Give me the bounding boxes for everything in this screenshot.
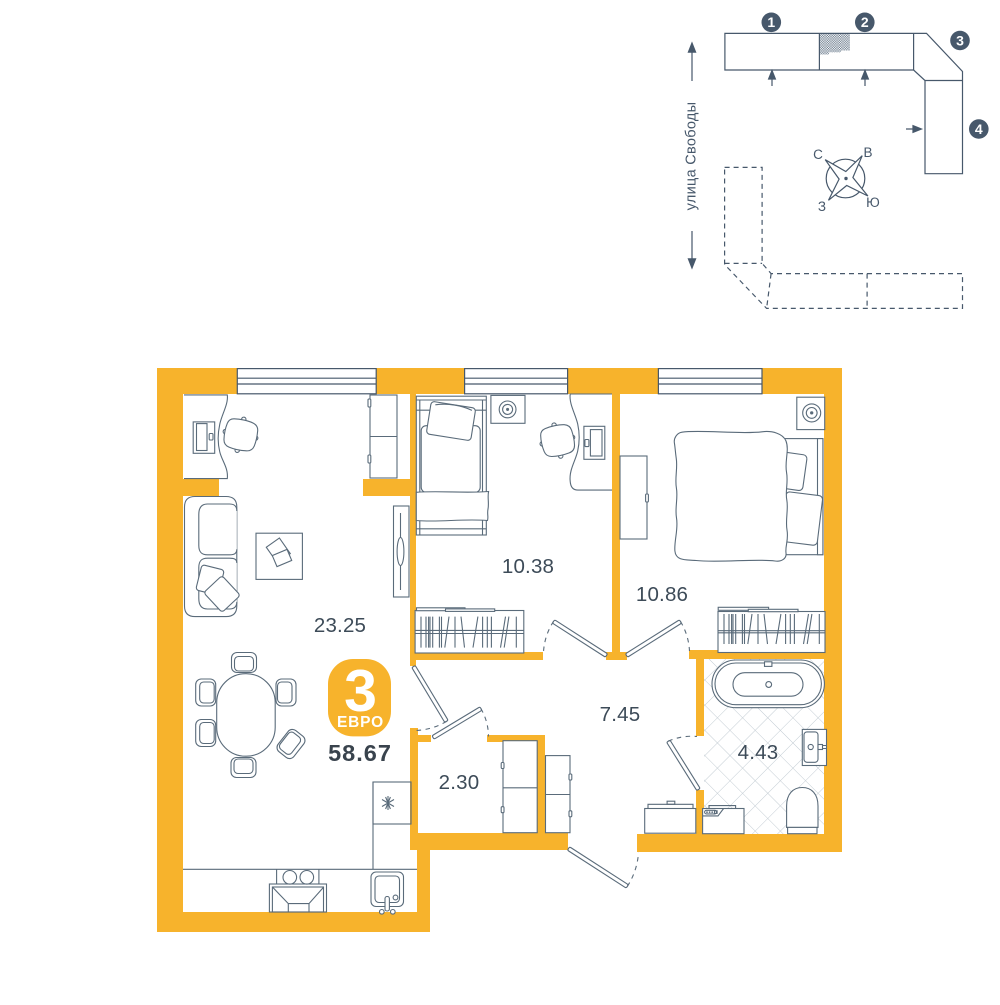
svg-text:2.30: 2.30 — [439, 771, 480, 794]
svg-text:В: В — [863, 145, 872, 160]
svg-text:2: 2 — [861, 14, 869, 30]
svg-text:10.38: 10.38 — [502, 555, 554, 578]
svg-text:23.25: 23.25 — [314, 614, 366, 637]
svg-text:1: 1 — [767, 14, 775, 30]
svg-text:4.43: 4.43 — [738, 741, 779, 764]
svg-text:З: З — [818, 199, 826, 214]
svg-text:Ю: Ю — [866, 195, 880, 210]
svg-text:10.86: 10.86 — [636, 583, 688, 606]
svg-text:ЕВРО: ЕВРО — [337, 714, 384, 731]
svg-text:С: С — [813, 147, 823, 162]
svg-text:4: 4 — [975, 121, 983, 137]
svg-text:улица Свободы: улица Свободы — [684, 102, 700, 211]
svg-text:3: 3 — [956, 32, 964, 48]
svg-text:7.45: 7.45 — [600, 703, 641, 726]
svg-text:58.67: 58.67 — [328, 740, 392, 766]
